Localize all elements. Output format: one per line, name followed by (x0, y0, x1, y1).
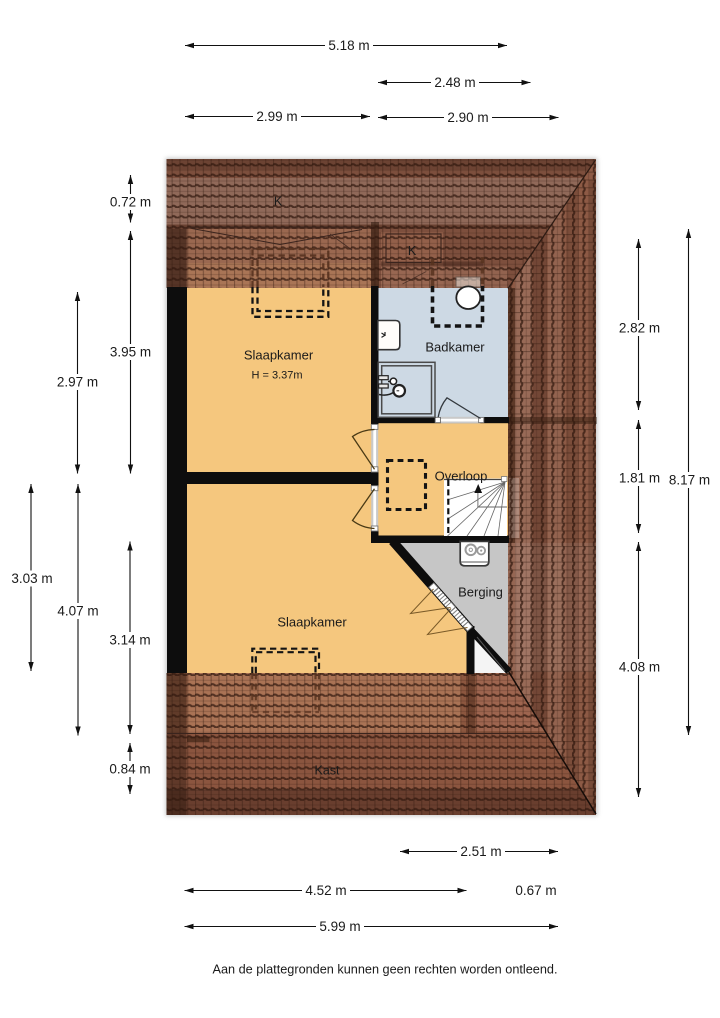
svg-text:Badkamer: Badkamer (425, 340, 485, 355)
svg-text:Slaapkamer: Slaapkamer (244, 348, 314, 363)
svg-text:5.99 m: 5.99 m (319, 919, 360, 934)
svg-text:2.90 m: 2.90 m (447, 110, 488, 125)
svg-text:Slaapkamer: Slaapkamer (277, 615, 347, 630)
svg-text:2.48 m: 2.48 m (434, 75, 475, 90)
svg-text:H = 3.37m: H = 3.37m (251, 370, 302, 382)
svg-text:K: K (408, 244, 417, 258)
svg-text:2.51 m: 2.51 m (460, 844, 501, 859)
svg-text:2.99 m: 2.99 m (256, 109, 297, 124)
svg-text:0.67 m: 0.67 m (515, 883, 556, 898)
svg-text:K: K (274, 195, 283, 209)
svg-text:Kast: Kast (314, 764, 340, 778)
svg-text:0.84 m: 0.84 m (109, 762, 150, 777)
svg-text:4.07 m: 4.07 m (57, 604, 98, 619)
svg-text:Berging: Berging (458, 585, 503, 600)
svg-text:Overloop: Overloop (435, 469, 488, 484)
svg-text:3.14 m: 3.14 m (109, 633, 150, 648)
svg-text:4.52 m: 4.52 m (305, 883, 346, 898)
svg-text:3.95 m: 3.95 m (110, 345, 151, 360)
svg-text:5.18 m: 5.18 m (328, 38, 369, 53)
svg-text:4.08 m: 4.08 m (619, 660, 660, 675)
svg-text:2.97 m: 2.97 m (57, 375, 98, 390)
svg-text:2.82 m: 2.82 m (619, 321, 660, 336)
svg-text:1.81 m: 1.81 m (619, 471, 660, 486)
svg-text:Aan de plattegronden kunnen ge: Aan de plattegronden kunnen geen rechten… (213, 963, 558, 977)
svg-text:0.72 m: 0.72 m (110, 195, 151, 210)
svg-text:3.03 m: 3.03 m (11, 571, 52, 586)
svg-text:8.17 m: 8.17 m (669, 473, 710, 488)
